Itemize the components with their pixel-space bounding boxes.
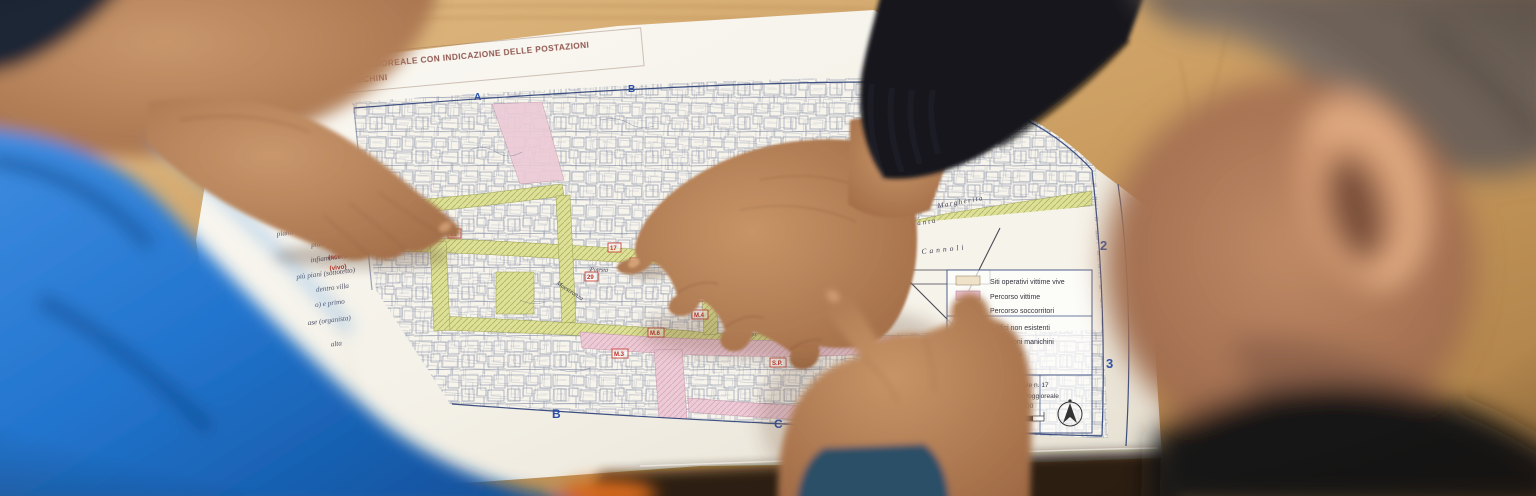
photo-two-men-pointing-at-map: PLANIMETRIA SITI POGGIOREALE CON INDICAZ… (0, 0, 1536, 496)
vignette (0, 0, 1536, 496)
photo-canvas: PLANIMETRIA SITI POGGIOREALE CON INDICAZ… (0, 0, 1536, 496)
